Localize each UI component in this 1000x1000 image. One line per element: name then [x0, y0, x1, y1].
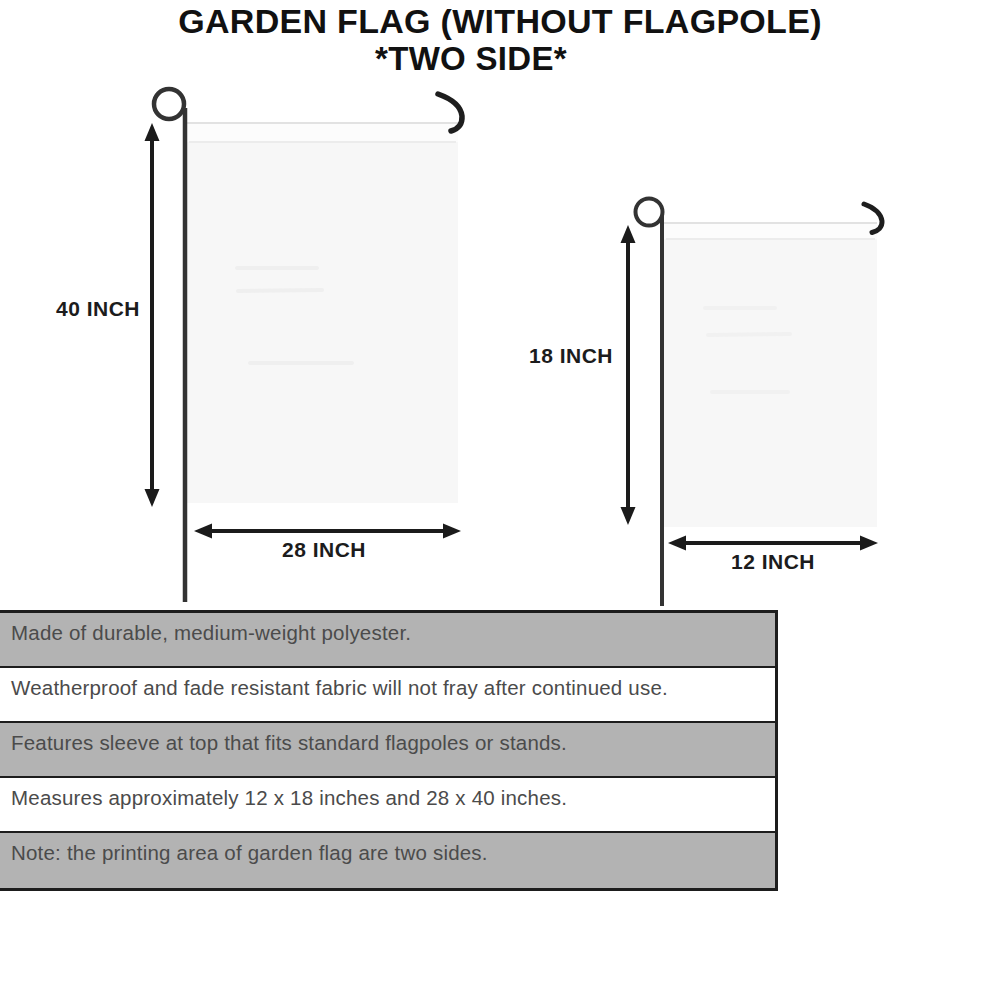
small-flag-diagram: 18 INCH 12 INCH	[529, 199, 882, 607]
large-width-label: 28 INCH	[282, 538, 366, 561]
small-flag-body	[664, 222, 877, 527]
title-block: GARDEN FLAG (WITHOUT FLAGPOLE) *TWO SIDE…	[0, 2, 1000, 78]
small-flag-creases	[705, 308, 790, 392]
large-flag-diagram: 40 INCH 28 INCH	[56, 89, 462, 602]
small-width-label: 12 INCH	[731, 550, 815, 573]
small-flagpole-loop	[636, 199, 663, 226]
large-height-arrow	[145, 123, 160, 507]
small-flag-sleeve	[664, 222, 877, 239]
page-subtitle: *TWO SIDE*	[0, 40, 971, 78]
spec-row-weatherproof: Weatherproof and fade resistant fabric w…	[0, 668, 775, 723]
spec-row-text: Made of durable, medium-weight polyester…	[11, 621, 411, 644]
large-width-arrow	[194, 524, 461, 539]
large-hanger-hook-icon	[438, 94, 462, 131]
large-flag-sleeve	[187, 122, 458, 142]
small-height-arrow	[621, 225, 636, 525]
spec-row-text: Features sleeve at top that fits standar…	[11, 731, 567, 754]
large-flag-body	[187, 122, 458, 503]
large-flag-creases	[237, 268, 352, 363]
spec-row-material: Made of durable, medium-weight polyester…	[0, 613, 775, 668]
garden-flag-size-chart: GARDEN FLAG (WITHOUT FLAGPOLE) *TWO SIDE…	[0, 0, 1000, 1000]
small-hanger-hook-icon	[864, 204, 882, 233]
small-width-arrow	[668, 536, 878, 551]
spec-row-text: Weatherproof and fade resistant fabric w…	[11, 676, 668, 699]
spec-row-text: Note: the printing area of garden flag a…	[11, 841, 488, 864]
large-height-label: 40 INCH	[56, 297, 140, 320]
small-height-label: 18 INCH	[529, 344, 613, 367]
spec-row-measures: Measures approximately 12 x 18 inches an…	[0, 778, 775, 833]
spec-row-sleeve: Features sleeve at top that fits standar…	[0, 723, 775, 778]
spec-table: Made of durable, medium-weight polyester…	[0, 610, 778, 891]
spec-row-text: Measures approximately 12 x 18 inches an…	[11, 786, 567, 809]
large-flagpole-loop	[154, 89, 184, 119]
page-title: GARDEN FLAG (WITHOUT FLAGPOLE)	[0, 2, 1000, 40]
spec-row-note: Note: the printing area of garden flag a…	[0, 833, 775, 888]
